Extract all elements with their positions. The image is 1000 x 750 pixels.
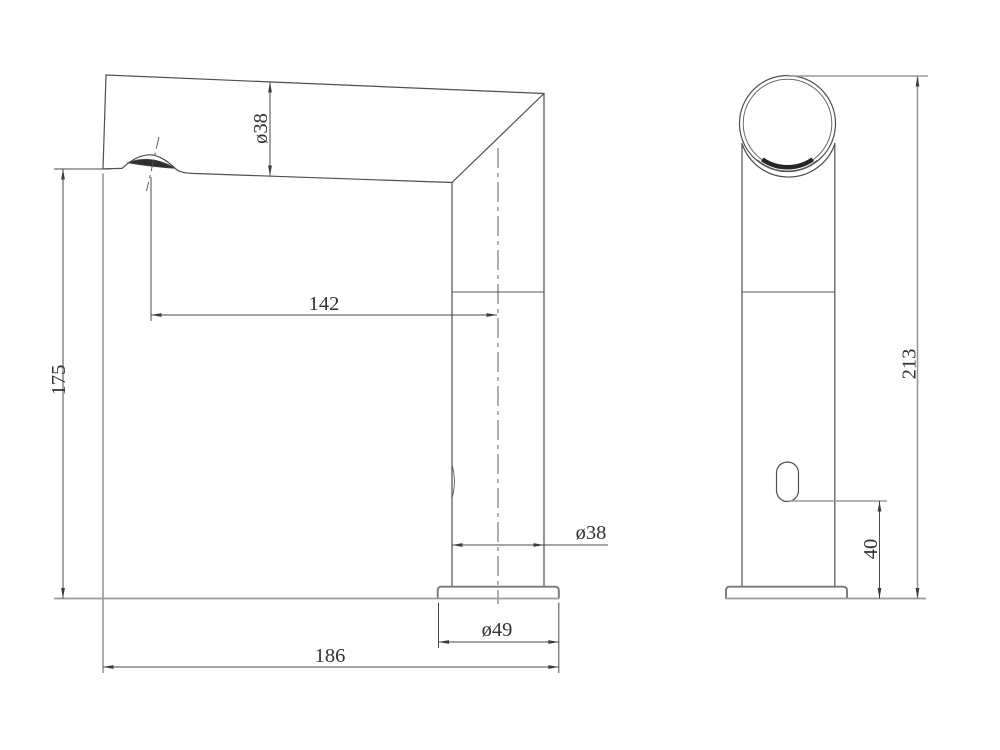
spout-tip-edge bbox=[103, 75, 106, 169]
dim-base-diameter-label: ø49 bbox=[482, 619, 513, 641]
dim-body-diameter-label: ø38 bbox=[576, 522, 607, 544]
dim-overall-height-label: 213 bbox=[899, 349, 921, 380]
spout-mouth-shadow bbox=[762, 159, 812, 167]
technical-drawing: ø38 142 175 ø38 ø49 186 bbox=[0, 0, 1000, 750]
dim-spout-diameter: ø38 bbox=[250, 82, 272, 176]
spout-body-diagonal bbox=[452, 94, 544, 183]
sensor-window bbox=[777, 462, 799, 502]
front-base-plate bbox=[726, 587, 847, 599]
dim-body-diameter: ø38 bbox=[452, 522, 608, 547]
dim-spout-reach-label: 142 bbox=[309, 293, 340, 315]
dim-sensor-height-label: 40 bbox=[860, 539, 882, 560]
spout-top-edge bbox=[106, 75, 544, 94]
front-view bbox=[726, 76, 926, 599]
drawing-page: ø38 142 175 ø38 ø49 186 bbox=[0, 0, 1000, 750]
dim-base-diameter: ø49 bbox=[439, 603, 559, 674]
dim-outlet-height: 175 bbox=[48, 169, 111, 599]
side-view bbox=[54, 75, 559, 604]
dim-overall-depth-label: 186 bbox=[315, 645, 346, 667]
spout-bottom-edge bbox=[122, 155, 452, 183]
dim-spout-reach: 142 bbox=[151, 177, 497, 321]
aerator-outlet bbox=[128, 159, 176, 168]
dim-outlet-height-label: 175 bbox=[48, 365, 70, 396]
dim-sensor-height: 40 bbox=[788, 501, 887, 599]
dim-spout-diameter-label: ø38 bbox=[250, 113, 272, 144]
spout-end-outer-circle bbox=[740, 76, 836, 172]
dim-overall-height: 213 bbox=[788, 76, 929, 599]
spout-end-inner-circle bbox=[743, 79, 832, 168]
